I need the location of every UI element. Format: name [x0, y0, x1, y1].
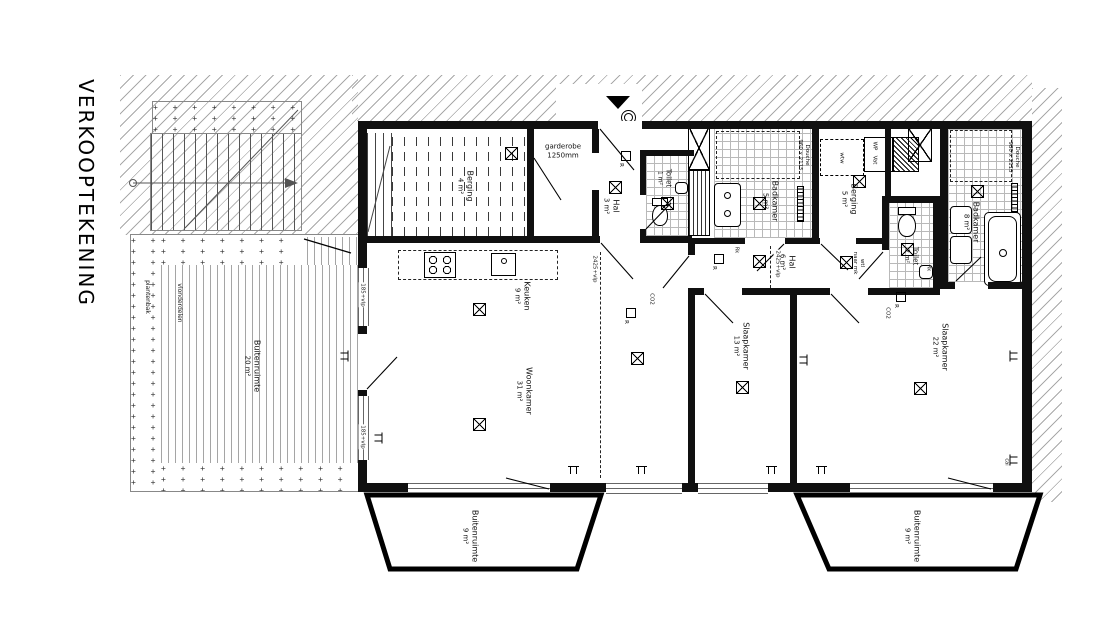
switch-icon: R — [626, 308, 636, 318]
wall — [785, 238, 820, 244]
switch-icon: R — [621, 151, 631, 161]
ceiling-line — [600, 252, 601, 478]
socket-icon — [341, 351, 349, 362]
window — [698, 483, 768, 494]
window — [606, 483, 682, 494]
wall — [885, 129, 891, 196]
wall — [768, 483, 852, 492]
rk-label: Rk — [925, 265, 932, 271]
terrace-label: Buitenruimte 20 m² — [242, 340, 261, 392]
terrace-decking-corner — [307, 237, 363, 265]
socket-icon — [375, 433, 383, 444]
sink-icon — [491, 253, 516, 276]
wtw-label: wtw — [837, 152, 844, 163]
ceiling-light-icon — [971, 185, 984, 198]
wall — [358, 483, 410, 492]
switch-icon: R — [714, 254, 724, 264]
wall — [640, 156, 646, 195]
ceiling-light-icon — [505, 147, 518, 160]
wall — [358, 326, 367, 334]
room-label-woonkamer: Woonkamer 31 m² — [514, 367, 533, 415]
wall — [790, 295, 797, 483]
co2-label: CO2 — [883, 307, 890, 319]
wall — [640, 150, 694, 156]
badkamer-small-washbasin — [714, 183, 741, 227]
socket-icon — [766, 466, 777, 474]
sink-drain — [501, 258, 507, 264]
ceiling-light-icon — [473, 303, 486, 316]
socket-icon — [816, 466, 827, 474]
wall — [682, 483, 698, 492]
ceiling-light-icon — [914, 382, 927, 395]
room-label-garderobe: garderobe 1250mm — [545, 142, 581, 160]
socket-icon — [568, 466, 579, 474]
socket-icon — [1010, 351, 1018, 362]
ceiling-light-icon — [473, 418, 486, 431]
window — [850, 483, 993, 494]
toilet-large-bowl — [898, 214, 916, 237]
switch-label: R — [618, 163, 624, 167]
wall — [1022, 121, 1032, 492]
entrance-arrow-icon — [606, 96, 630, 109]
shower-small-outline — [716, 131, 800, 179]
terrace-planter-top — [161, 235, 307, 265]
sill-height-label: 185+vlp — [358, 424, 365, 449]
ceiling-light-icon — [661, 197, 674, 210]
decking-label: vlonderdelen — [175, 283, 183, 322]
radiator-icon — [1011, 183, 1018, 213]
ceiling-height-label: 2425+vlp — [773, 250, 780, 279]
wall — [640, 236, 692, 243]
room-label-slaapkamer-1: Slaapkamer 13 m² — [731, 322, 750, 370]
stove-icon — [424, 252, 456, 278]
shaft-icon — [688, 126, 710, 170]
ceiling-height-label: 2425+vlp — [590, 255, 597, 284]
ceiling-line — [770, 246, 771, 288]
wall — [692, 238, 745, 244]
basin-drain — [724, 192, 731, 199]
shower-large-label: Douche 980 x 2115 — [1006, 141, 1020, 172]
window — [408, 483, 550, 494]
room-label-keuken: Keuken 9 m² — [512, 281, 531, 310]
room-label-hal-entree: Hal 3 m² — [601, 198, 620, 214]
terrace-decking — [161, 265, 363, 463]
co2-label: CO2 — [647, 293, 654, 305]
room-label-berging-large: Berging 5 m² — [839, 183, 858, 214]
terrace-planter-left — [131, 235, 161, 491]
room-label-badkamer-small: Badkamer 5 m² — [760, 181, 779, 222]
switch-label: R — [623, 320, 629, 324]
wall — [940, 126, 948, 288]
room-label-berging-small: Berging 4 m² — [455, 170, 474, 201]
cai-label: cai — [1003, 458, 1010, 465]
room-label-toilet-small: Toilet 1 m² — [656, 169, 673, 187]
hatch-neighbour-right — [1032, 88, 1062, 502]
balcony-left-label: Buitenruimte 9 m² — [460, 510, 479, 562]
wall — [940, 282, 955, 289]
wall — [358, 121, 367, 268]
socket-icon — [800, 355, 808, 366]
socket-icon — [1010, 455, 1018, 466]
sill-height-label: 185+vlp — [358, 282, 365, 307]
room-label-badkamer-large: Badkamer 8 m² — [961, 202, 980, 243]
wall — [742, 288, 830, 295]
rk-label: Rk — [733, 247, 740, 253]
duct — [688, 170, 710, 236]
wall — [642, 121, 1032, 129]
planter-strip — [152, 101, 302, 134]
kitchen-counter — [398, 250, 558, 280]
wall — [527, 129, 534, 236]
wall — [358, 121, 598, 129]
room-label-slaapkamer-2: Slaapkamer 22 m² — [930, 323, 949, 371]
page-title: VERKOOPTEKENING — [73, 79, 99, 307]
vat-label: Vat — [870, 156, 877, 165]
wall — [367, 236, 600, 243]
common-staircase — [150, 133, 302, 231]
wall — [933, 196, 940, 290]
wall — [592, 129, 599, 153]
socket-icon — [636, 466, 647, 474]
basin-drain — [724, 210, 731, 217]
wall — [882, 203, 889, 250]
shower-large-outline — [950, 130, 1012, 182]
shaft-icon — [908, 128, 932, 162]
floorplan-sales-drawing: VERKOOPTEKENING plantenbak vlonderdelen … — [0, 0, 1105, 643]
switch-label: R — [893, 304, 899, 308]
ceiling-light-icon — [753, 255, 766, 268]
wall — [812, 129, 819, 238]
toilet-small-basin — [675, 182, 688, 194]
planter-label: plantenbak — [143, 280, 151, 314]
wall — [688, 288, 695, 483]
hatch-top-strip — [352, 75, 1032, 121]
ceiling-light-icon — [631, 352, 644, 365]
wall — [988, 282, 1022, 289]
wall — [688, 243, 695, 255]
room-label-toilet-large: Toilet 2 m² — [903, 247, 920, 265]
ceiling-light-icon — [736, 381, 749, 394]
switch-label: R — [711, 266, 717, 270]
wall — [882, 196, 940, 203]
internal-stair — [367, 133, 392, 236]
wp-label: WP — [870, 142, 877, 151]
bathtub-drain — [999, 249, 1007, 257]
ceiling-light-icon — [609, 181, 622, 194]
wall — [592, 190, 599, 236]
wall — [640, 229, 646, 236]
wtl-label: wtl naar mk — [851, 252, 865, 275]
switch-icon: R — [896, 292, 906, 302]
bathtub-icon — [984, 212, 1021, 286]
balcony-right-label: Buitenruimte 9 m² — [902, 510, 921, 562]
shower-small-label: Douche 960 x 2115 — [796, 139, 810, 170]
radiator-icon — [797, 186, 804, 222]
wall — [550, 483, 608, 492]
terrace-planter-bottom — [161, 463, 363, 491]
